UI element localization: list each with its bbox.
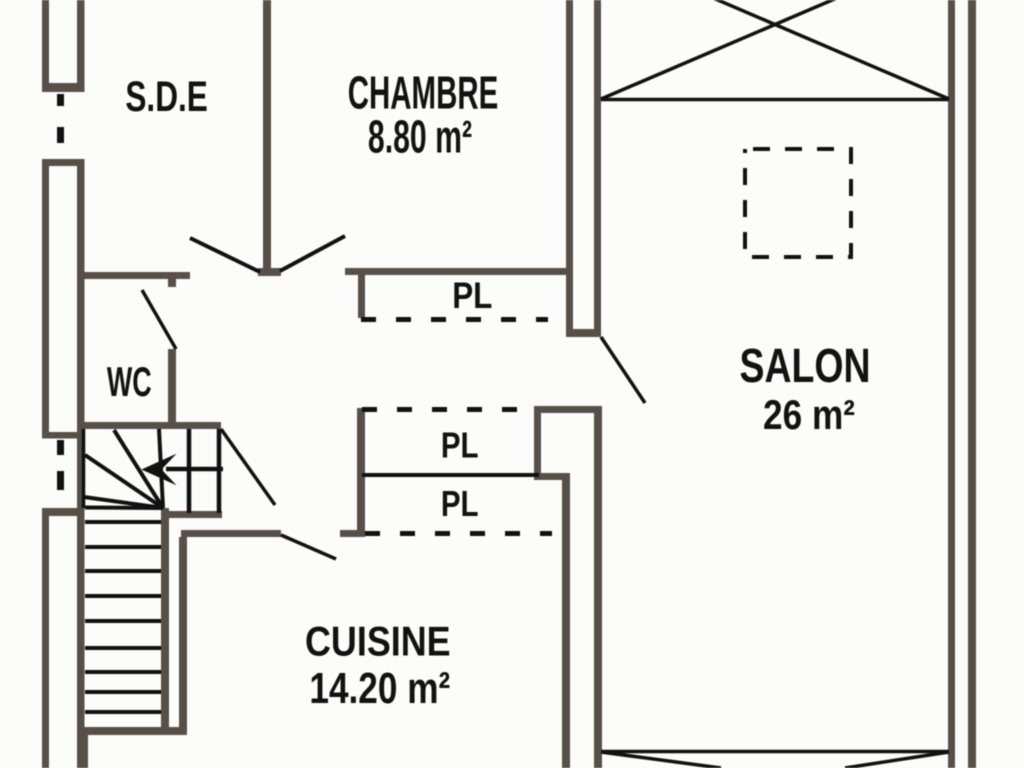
svg-text:PL: PL — [441, 425, 479, 465]
svg-text:CUISINE: CUISINE — [305, 619, 451, 665]
svg-text:26 m²: 26 m² — [763, 392, 855, 439]
svg-text:PL: PL — [441, 483, 479, 523]
svg-text:SALON: SALON — [740, 340, 871, 394]
svg-text:8.80 m²: 8.80 m² — [368, 112, 472, 163]
svg-text:S.D.E: S.D.E — [125, 72, 208, 120]
svg-text:14.20 m²: 14.20 m² — [309, 664, 450, 713]
svg-text:PL: PL — [452, 276, 492, 317]
svg-text:WC: WC — [107, 359, 152, 405]
